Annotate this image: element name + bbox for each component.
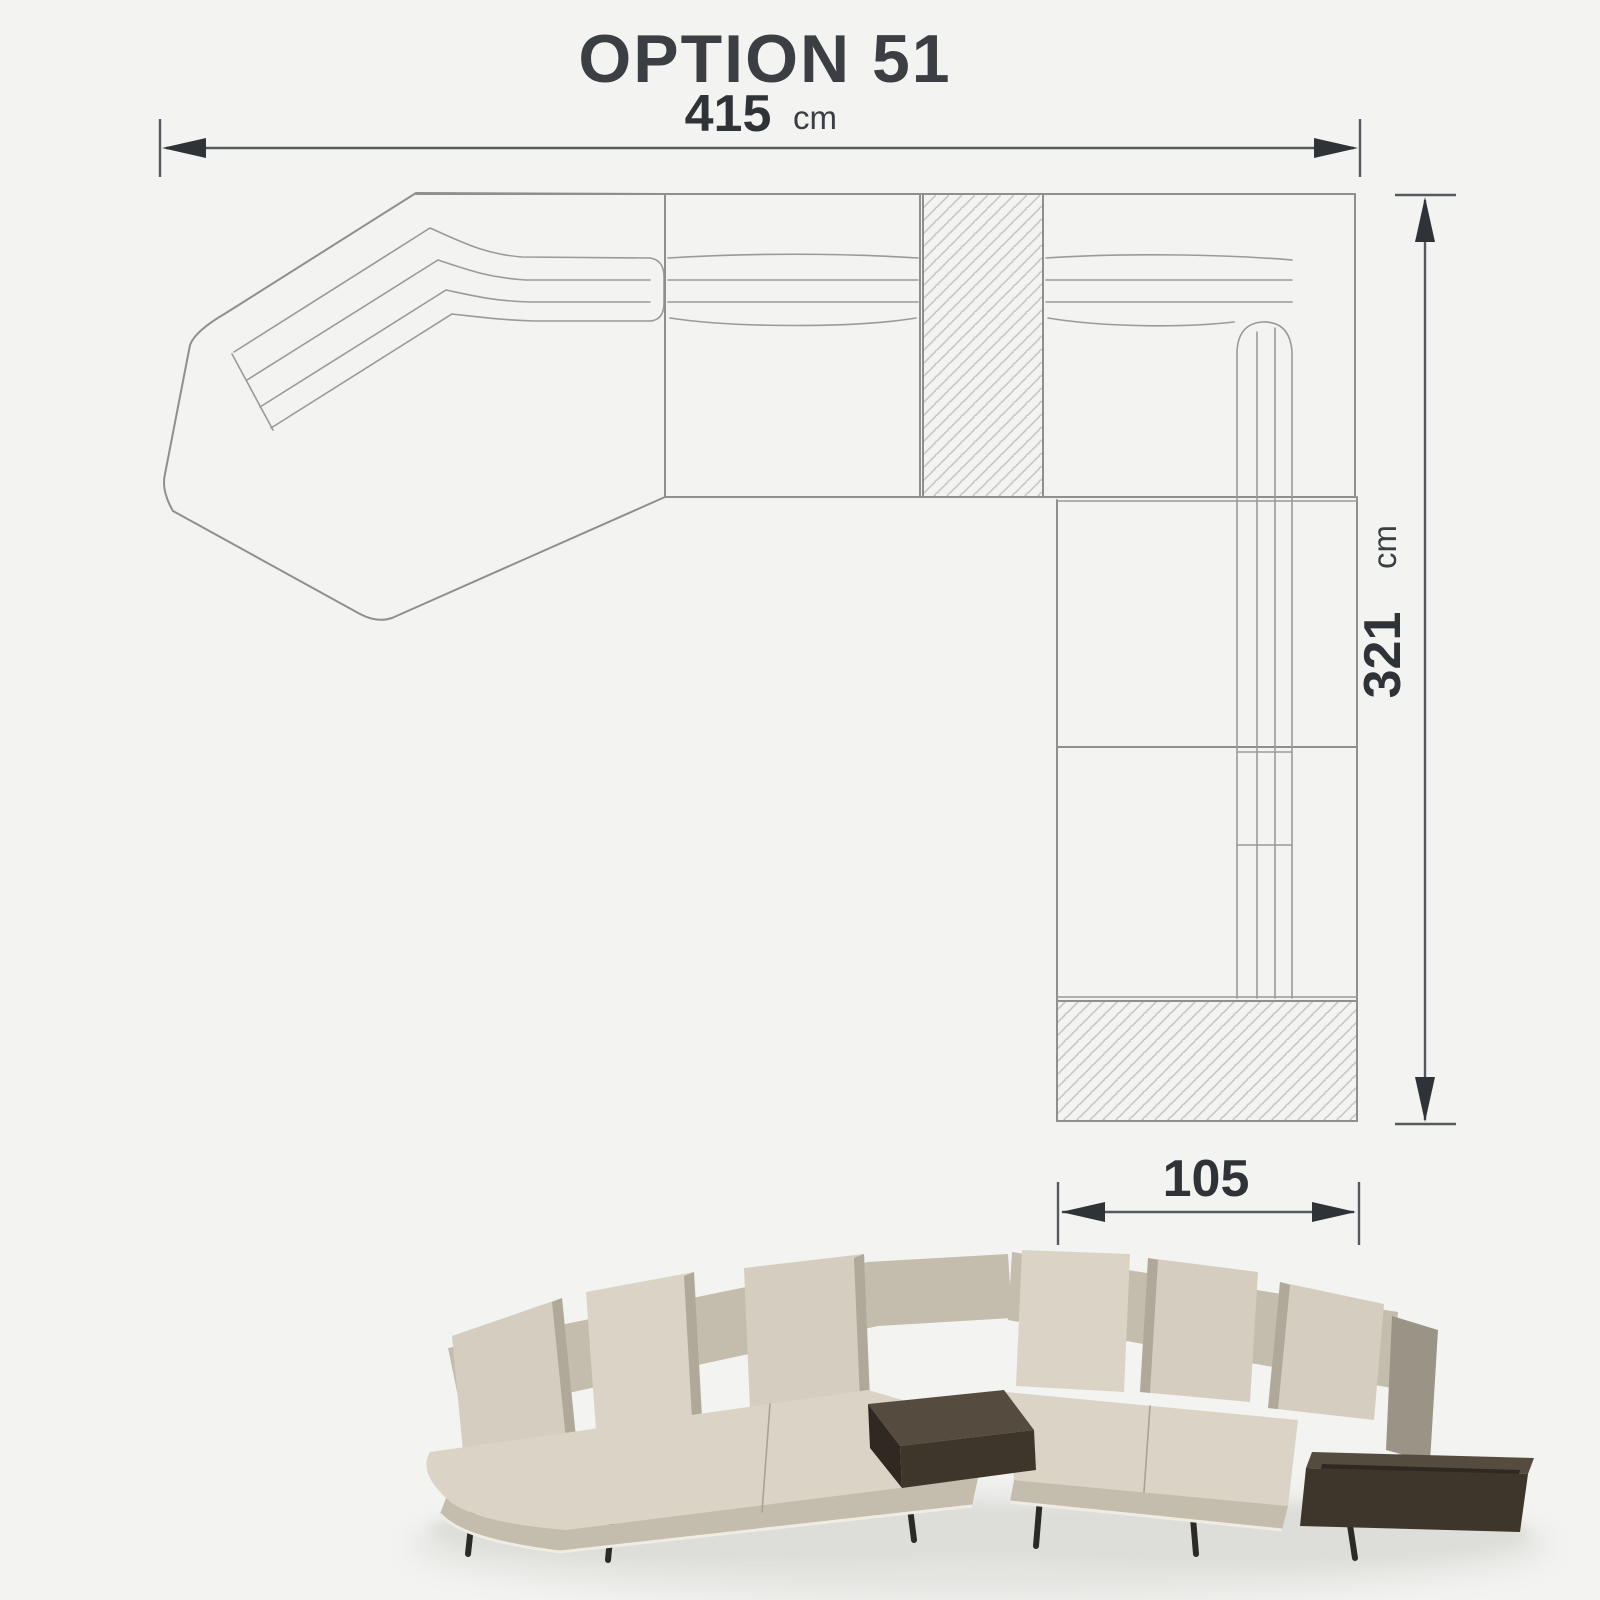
height-dimension-unit: cm (1366, 525, 1403, 569)
sofa-back-cushions-right (1016, 1250, 1384, 1420)
height-dimension: 321 cm (1354, 195, 1456, 1124)
middle-seat-module (668, 194, 920, 497)
width-dimension-right-arrow-icon (1314, 138, 1358, 158)
diagram-svg: OPTION 51 415 cm (0, 0, 1600, 1600)
corner-module (1043, 194, 1355, 497)
back-cushion (1016, 1250, 1130, 1392)
product-dimension-sheet: OPTION 51 415 cm (0, 0, 1600, 1600)
chaise-cushion-end-cap (232, 354, 273, 430)
right-seat-column (1057, 322, 1357, 1118)
plan-drawing (164, 193, 1357, 1121)
depth-dimension-left-arrow-icon (1061, 1202, 1105, 1222)
height-dimension-up-arrow-icon (1415, 197, 1435, 242)
sofa-photo (410, 1250, 1550, 1597)
middle-seat-front-curve (670, 318, 916, 326)
chaise-cushion-round-cap (650, 258, 664, 321)
tray-table-hatch-middle (923, 194, 1043, 497)
depth-dimension: 105 (1058, 1150, 1359, 1245)
back-cushion (1140, 1258, 1258, 1402)
back-cushion (744, 1254, 870, 1408)
depth-dimension-value: 105 (1163, 1150, 1250, 1208)
corner-tray-table (868, 1390, 1036, 1488)
depth-dimension-right-arrow-icon (1312, 1202, 1356, 1222)
height-dimension-down-arrow-icon (1415, 1077, 1435, 1122)
width-dimension: 415 cm (160, 85, 1360, 177)
end-table-front (1300, 1468, 1528, 1532)
chaise-back-cushion (232, 228, 664, 430)
width-dimension-left-arrow-icon (162, 138, 206, 158)
side-table-hatch-bottom (1057, 1001, 1357, 1121)
sofa-end-side-panel (1386, 1316, 1438, 1462)
width-dimension-value: 415 (685, 85, 772, 143)
back-cushion (586, 1272, 702, 1430)
corner-seat-front-curve (1048, 318, 1234, 326)
end-tray-table (1300, 1452, 1534, 1532)
chaise-module (164, 193, 665, 620)
width-dimension-unit: cm (793, 99, 837, 136)
right-back-cushion (1237, 322, 1292, 998)
height-dimension-value: 321 (1354, 612, 1412, 699)
